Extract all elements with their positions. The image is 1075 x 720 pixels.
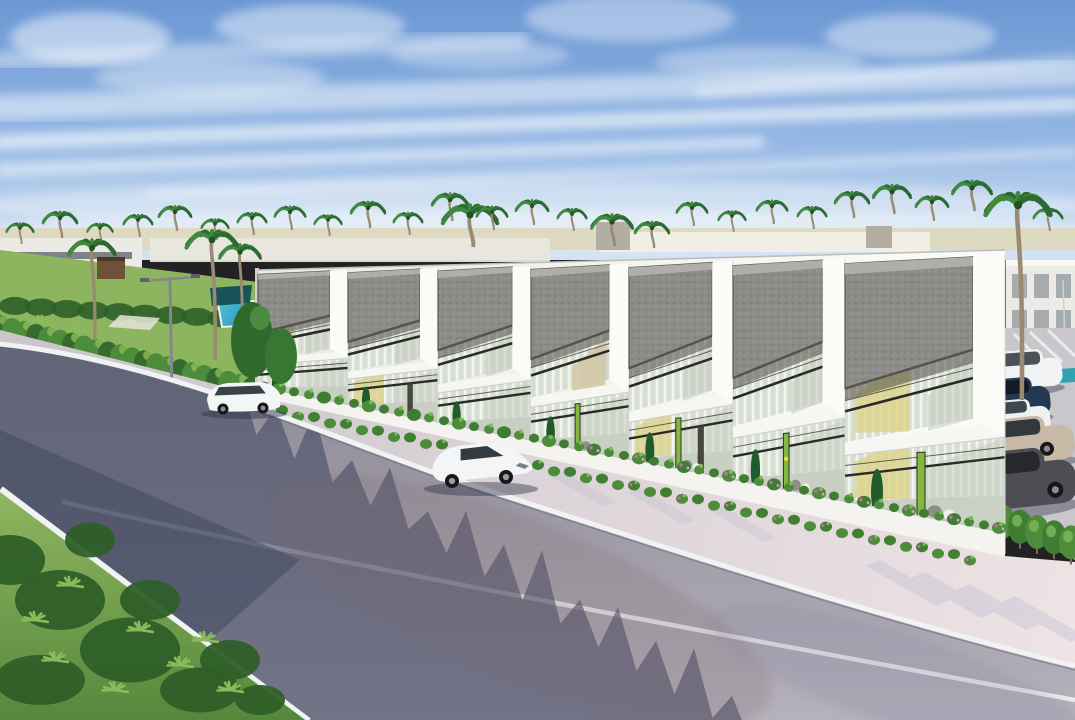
- planter-flower: [822, 493, 825, 496]
- walkway-planter-flower: [630, 483, 633, 486]
- planter-flower: [724, 472, 728, 476]
- planter-flower: [994, 524, 998, 528]
- palm-crown-center: [136, 218, 140, 222]
- walkway-planter-shrub: [324, 418, 336, 428]
- panel-logo: [784, 457, 788, 461]
- palm-crown-center: [366, 206, 370, 210]
- palm-crown-center: [690, 206, 694, 210]
- palm-crown-center: [406, 216, 410, 220]
- planter-shrub: [529, 434, 539, 443]
- walkway-planter-highlight: [970, 556, 973, 559]
- planter-flower: [597, 449, 600, 452]
- tree-blob: [265, 328, 297, 384]
- walkway-planter-shrub: [836, 528, 848, 538]
- walkway-planter-highlight: [394, 433, 397, 436]
- green-wall-panel: [676, 418, 681, 468]
- walkway-planter-shrub: [708, 501, 720, 511]
- palm-crown-center: [448, 198, 453, 203]
- verge-bush: [65, 523, 115, 558]
- planter-flower: [679, 463, 683, 467]
- walkway-planter-flower: [870, 537, 873, 540]
- walkway-planter-shrub: [692, 494, 704, 504]
- planter-shrub-highlight: [429, 412, 433, 416]
- walkway-planter-shrub: [436, 439, 448, 449]
- palm-crown-center: [173, 210, 177, 214]
- walkway-planter-shrub: [788, 515, 800, 525]
- palm-crown-center: [890, 190, 895, 195]
- white-pier: [973, 255, 1005, 438]
- walkway-planter-shrub: [356, 425, 368, 435]
- planter-shrub: [889, 503, 899, 512]
- walkway-planter-flower: [966, 558, 969, 561]
- walkway-planter-shrub: [820, 522, 832, 532]
- cloud-puff: [825, 14, 995, 58]
- white-pier: [420, 268, 438, 369]
- verge-bush: [200, 640, 260, 680]
- walkway-planter-shrub: [884, 535, 896, 545]
- walkway-planter-shrub: [964, 556, 976, 566]
- walkway-planter-shrub: [596, 474, 608, 484]
- planter-shrub-highlight: [339, 394, 343, 398]
- palm-crown-center: [58, 216, 62, 220]
- planter-shrub: [709, 468, 719, 477]
- car-wheel-hub: [503, 474, 509, 480]
- planter-flower: [859, 498, 863, 502]
- planter-shrub: [289, 387, 299, 396]
- planter-flower: [589, 446, 593, 450]
- palm-crown-center: [490, 210, 494, 214]
- white-pier: [712, 261, 733, 405]
- planter-shrub: [919, 509, 929, 518]
- palm-crown-center: [250, 216, 254, 220]
- planter-flower: [732, 475, 735, 478]
- planter-shrub-highlight: [939, 510, 943, 514]
- white-pier: [823, 258, 845, 418]
- planter-shrub: [439, 416, 449, 425]
- walkway-planter-shrub: [612, 480, 624, 490]
- planter-shrub-highlight: [969, 516, 973, 520]
- palm-crown-center: [326, 218, 330, 222]
- planter-shrub: [559, 439, 569, 448]
- palm-crown-center: [288, 210, 292, 214]
- planter-shrub-highlight: [699, 464, 703, 468]
- walkway-planter-highlight: [874, 535, 877, 538]
- walkway-planter-highlight: [730, 501, 733, 504]
- planter-shrub-highlight: [609, 447, 613, 451]
- green-wall-panel: [783, 433, 789, 489]
- planter-shrub-highlight: [489, 423, 493, 427]
- planter-flower: [904, 507, 908, 511]
- planter-shrub: [829, 491, 839, 500]
- walkway-planter-highlight: [826, 522, 829, 525]
- walkway-planter-shrub: [404, 433, 416, 443]
- walkway-planter-highlight: [586, 474, 589, 477]
- walkway-planter-shrub: [628, 481, 640, 491]
- planter-shrub: [452, 418, 466, 430]
- right-building-parapet: [1006, 260, 1075, 266]
- walkway-planter-shrub: [388, 432, 400, 442]
- planter-shrub-highlight: [519, 429, 523, 433]
- walkway-planter-flower: [822, 524, 825, 527]
- palm-crown-center: [89, 245, 95, 251]
- planter-shrub-highlight: [879, 499, 883, 503]
- planter-shrub: [379, 405, 389, 414]
- walkway-planter-shrub: [660, 487, 672, 497]
- walkway-planter-highlight: [682, 494, 685, 497]
- planter-shrub: [349, 399, 359, 408]
- white-pier: [512, 266, 531, 381]
- planter-shrub-highlight: [579, 441, 583, 445]
- walkway-planter-flower: [678, 496, 681, 499]
- planter-shrub-highlight: [669, 458, 673, 462]
- walkway-planter-highlight: [298, 412, 301, 415]
- planter-shrub: [317, 392, 331, 404]
- walkway-planter-shrub: [308, 412, 320, 422]
- car-shadow: [424, 482, 538, 496]
- walkway-planter-shrub: [532, 460, 544, 470]
- planter-flower: [642, 458, 645, 461]
- hedge-tree-highlight: [1046, 525, 1056, 537]
- walkway-planter-shrub: [772, 514, 784, 524]
- palm-crown-center: [213, 222, 217, 226]
- planter-flower: [777, 484, 780, 487]
- walkway-planter-shrub: [372, 426, 384, 436]
- planter-shrub: [469, 422, 479, 431]
- walkway-planter-shrub: [676, 494, 688, 504]
- hedge-tree-highlight: [1063, 530, 1073, 542]
- walkway-planter-shrub: [852, 529, 864, 539]
- planter-shrub: [362, 400, 376, 412]
- green-wall-panel: [917, 452, 925, 515]
- planter-shrub: [979, 520, 989, 529]
- lamp-head: [140, 278, 149, 282]
- palm-crown-center: [850, 196, 854, 200]
- planter-shrub-highlight: [459, 418, 463, 422]
- planter-shrub: [542, 435, 556, 447]
- palm-crown-center: [18, 226, 22, 230]
- walkway-planter-shrub: [804, 521, 816, 531]
- walkway-planter-highlight: [634, 481, 637, 484]
- right-building-window: [1034, 274, 1049, 298]
- planter-shrub: [407, 409, 421, 421]
- walkway-planter-shrub: [740, 508, 752, 518]
- planter-shrub-highlight: [369, 400, 373, 404]
- tree-blob-highlight: [250, 306, 270, 330]
- palm-crown-center: [570, 212, 574, 216]
- palm-crown-center: [98, 226, 101, 229]
- planter-shrub-highlight: [849, 493, 853, 497]
- palm-crown-center: [209, 237, 216, 244]
- walkway-planter-highlight: [922, 543, 925, 546]
- hedge-tree-highlight: [1012, 515, 1022, 527]
- planter-shrub-highlight: [729, 470, 733, 474]
- palm-crown-center: [930, 200, 934, 204]
- architectural-render-image: [0, 0, 1075, 720]
- rooftop-access-box: [866, 226, 892, 248]
- planter-shrub-highlight: [759, 476, 763, 480]
- walkway-planter-flower: [918, 545, 921, 548]
- walkway-planter-highlight: [778, 515, 781, 518]
- hedge-tree-highlight: [1029, 520, 1039, 532]
- lamp-head: [191, 274, 200, 278]
- planter-flower: [867, 501, 870, 504]
- planter-shrub-highlight: [639, 452, 643, 456]
- palm-crown-center: [466, 211, 473, 218]
- walkway-planter-flower: [774, 517, 777, 520]
- walkway-planter-shrub: [756, 508, 768, 518]
- planter-shrub-highlight: [819, 487, 823, 491]
- walkway-planter-shrub: [580, 473, 592, 483]
- planter-flower: [912, 510, 915, 513]
- planter-flower: [769, 481, 773, 485]
- walkway-planter-highlight: [442, 440, 445, 443]
- planter-shrub-highlight: [999, 522, 1003, 526]
- pergola-roof: [97, 257, 125, 261]
- planter-shrub-highlight: [309, 389, 313, 393]
- walkway-planter-shrub: [644, 487, 656, 497]
- car-wheel-hub: [261, 406, 266, 411]
- palm-crown-center: [650, 226, 654, 230]
- planter-flower: [957, 519, 960, 522]
- planter-shrub: [799, 486, 809, 495]
- walkway-planter-shrub: [900, 542, 912, 552]
- walkway-planter-shrub: [948, 549, 960, 559]
- walkway-planter-shrub: [932, 549, 944, 559]
- walkway-planter-shrub: [548, 466, 560, 476]
- palm-crown-center: [609, 219, 614, 224]
- planter-flower: [1002, 527, 1005, 530]
- planter-shrub-highlight: [789, 481, 793, 485]
- car-wheel-hub: [449, 478, 455, 484]
- planter-shrub: [649, 457, 659, 466]
- walkway-planter-shrub: [916, 542, 928, 552]
- palm-crown-center: [969, 185, 974, 190]
- planter-flower: [687, 467, 690, 470]
- walkway-planter-shrub: [564, 467, 576, 477]
- planter-flower: [949, 515, 953, 519]
- planter-shrub-highlight: [399, 406, 403, 410]
- palm-crown-center: [730, 214, 734, 218]
- walkway-planter-shrub: [868, 535, 880, 545]
- walkway-planter-highlight: [538, 460, 541, 463]
- verge-bush: [120, 580, 180, 620]
- planter-shrub: [619, 451, 629, 460]
- walkway-planter-flower: [726, 504, 729, 507]
- palm-crown-center: [810, 210, 814, 214]
- planter-shrub-highlight: [909, 504, 913, 508]
- palm-crown-center: [770, 204, 774, 208]
- render-stage: [0, 0, 1075, 720]
- planter-shrub-highlight: [549, 435, 553, 439]
- walkway-planter-highlight: [346, 419, 349, 422]
- white-pier: [330, 270, 348, 358]
- palm-crown-center: [237, 249, 242, 254]
- palm-crown-center: [530, 204, 534, 208]
- planter-shrub: [739, 474, 749, 483]
- walkway-planter-shrub: [420, 439, 432, 449]
- planter-shrub: [497, 426, 511, 438]
- planter-flower: [634, 455, 638, 459]
- palm-crown-center: [1014, 201, 1022, 209]
- walkway-planter-shrub: [724, 501, 736, 511]
- white-pier: [609, 263, 629, 392]
- walkway-planter-shrub: [340, 419, 352, 429]
- car-wheel-hub: [221, 407, 226, 412]
- planter-flower: [814, 489, 818, 493]
- verge-bush: [235, 685, 285, 715]
